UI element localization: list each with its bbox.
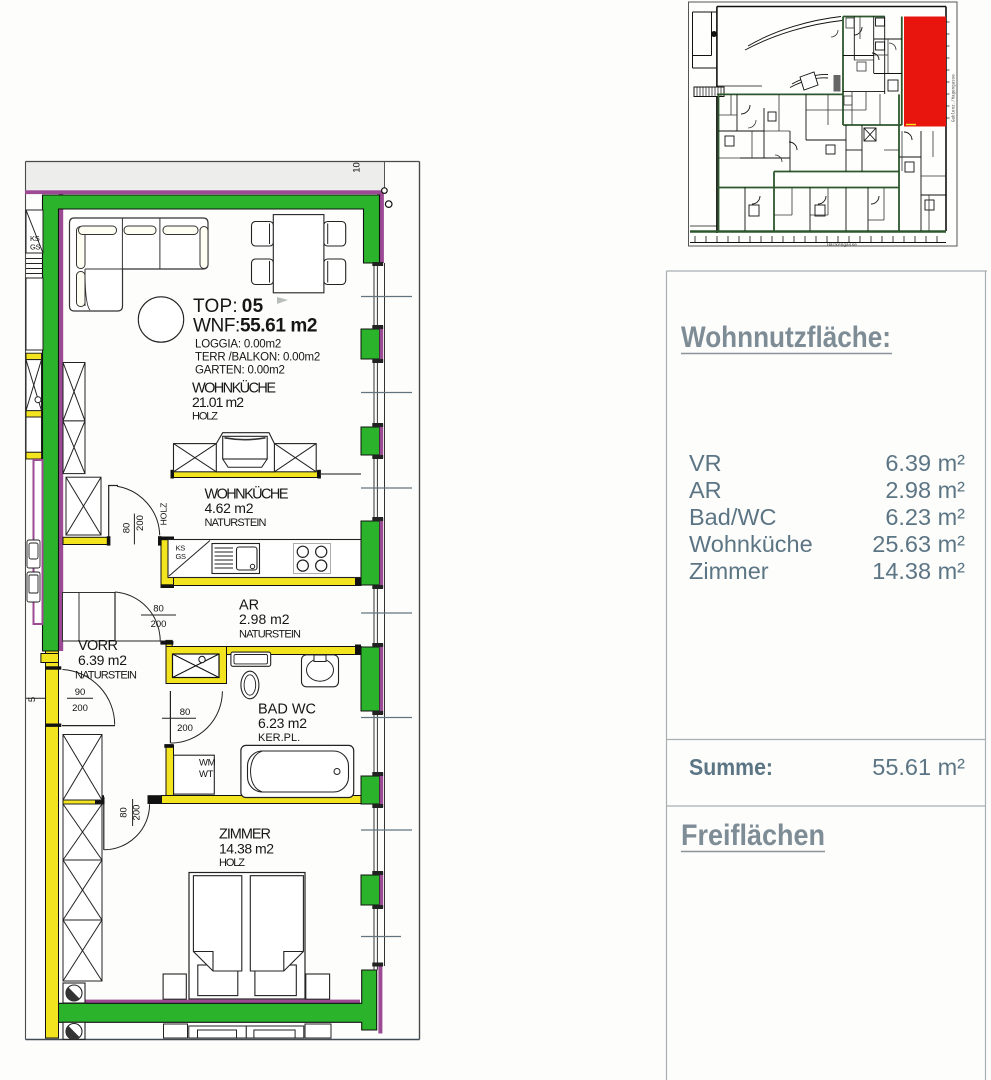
svg-text:Wohnnutzfläche:: Wohnnutzfläche: bbox=[681, 321, 891, 354]
svg-text:Wohnküche: Wohnküche bbox=[689, 531, 813, 557]
svg-text:21.01 m2: 21.01 m2 bbox=[192, 394, 244, 410]
svg-text:25.63 m²: 25.63 m² bbox=[872, 531, 965, 557]
svg-text:80: 80 bbox=[180, 707, 191, 718]
svg-text:Bad/WC: Bad/WC bbox=[689, 504, 777, 530]
svg-text:Gablenz./Hagengasse: Gablenz./Hagengasse bbox=[952, 74, 957, 122]
svg-text:6.23 m2: 6.23 m2 bbox=[258, 715, 307, 731]
svg-text:AR: AR bbox=[689, 477, 722, 503]
svg-text:5: 5 bbox=[27, 697, 38, 702]
svg-text:WT: WT bbox=[199, 769, 214, 780]
svg-text:LOGGIA: 0.00m2: LOGGIA: 0.00m2 bbox=[195, 339, 281, 351]
svg-text:14.38 m²: 14.38 m² bbox=[872, 558, 965, 584]
svg-text:NATURSTEIN: NATURSTEIN bbox=[239, 629, 301, 641]
svg-text:Summe:: Summe: bbox=[689, 754, 773, 780]
svg-text:Hackengasse: Hackengasse bbox=[827, 242, 857, 248]
svg-text:TERR /BALKON: 0.00m2: TERR /BALKON: 0.00m2 bbox=[195, 352, 320, 364]
svg-text:55.61 m²: 55.61 m² bbox=[872, 754, 965, 780]
svg-text:80: 80 bbox=[122, 523, 133, 534]
svg-text:KER.PL.: KER.PL. bbox=[258, 732, 300, 744]
svg-text:NATURSTEIN: NATURSTEIN bbox=[205, 517, 267, 529]
svg-text:2.98 m2: 2.98 m2 bbox=[239, 611, 290, 627]
svg-text:10: 10 bbox=[352, 162, 363, 173]
svg-text:HOLZ: HOLZ bbox=[219, 857, 245, 869]
svg-text:14.38 m2: 14.38 m2 bbox=[219, 841, 274, 857]
svg-text:WNF:55.61 m2: WNF:55.61 m2 bbox=[193, 316, 317, 337]
svg-text:HOLZ: HOLZ bbox=[159, 503, 169, 526]
svg-text:200: 200 bbox=[177, 723, 193, 734]
svg-text:200: 200 bbox=[151, 619, 167, 630]
svg-text:4.62 m2: 4.62 m2 bbox=[205, 500, 254, 516]
svg-text:200: 200 bbox=[132, 805, 143, 821]
svg-text:GS: GS bbox=[176, 552, 187, 561]
svg-text:6.23 m²: 6.23 m² bbox=[885, 504, 965, 530]
svg-text:80: 80 bbox=[153, 604, 164, 615]
svg-text:80: 80 bbox=[119, 807, 130, 818]
svg-text:Zimmer: Zimmer bbox=[689, 558, 769, 584]
svg-text:90: 90 bbox=[75, 687, 86, 698]
svg-text:2.98 m²: 2.98 m² bbox=[885, 477, 965, 503]
svg-text:HOLZ: HOLZ bbox=[192, 411, 218, 423]
svg-text:WM: WM bbox=[199, 758, 216, 769]
svg-text:NATURSTEIN: NATURSTEIN bbox=[75, 670, 137, 682]
svg-text:200: 200 bbox=[135, 515, 146, 531]
svg-text:200: 200 bbox=[72, 703, 88, 714]
svg-text:GARTEN: 0.00m2: GARTEN: 0.00m2 bbox=[195, 365, 285, 377]
svg-text:VR: VR bbox=[689, 450, 722, 476]
svg-text:6.39 m2: 6.39 m2 bbox=[78, 652, 127, 668]
svg-text:TOP:05: TOP:05 bbox=[193, 296, 264, 317]
svg-text:Freiflächen: Freiflächen bbox=[681, 819, 825, 852]
svg-text:GS: GS bbox=[30, 243, 41, 252]
svg-text:6.39 m²: 6.39 m² bbox=[885, 450, 965, 476]
